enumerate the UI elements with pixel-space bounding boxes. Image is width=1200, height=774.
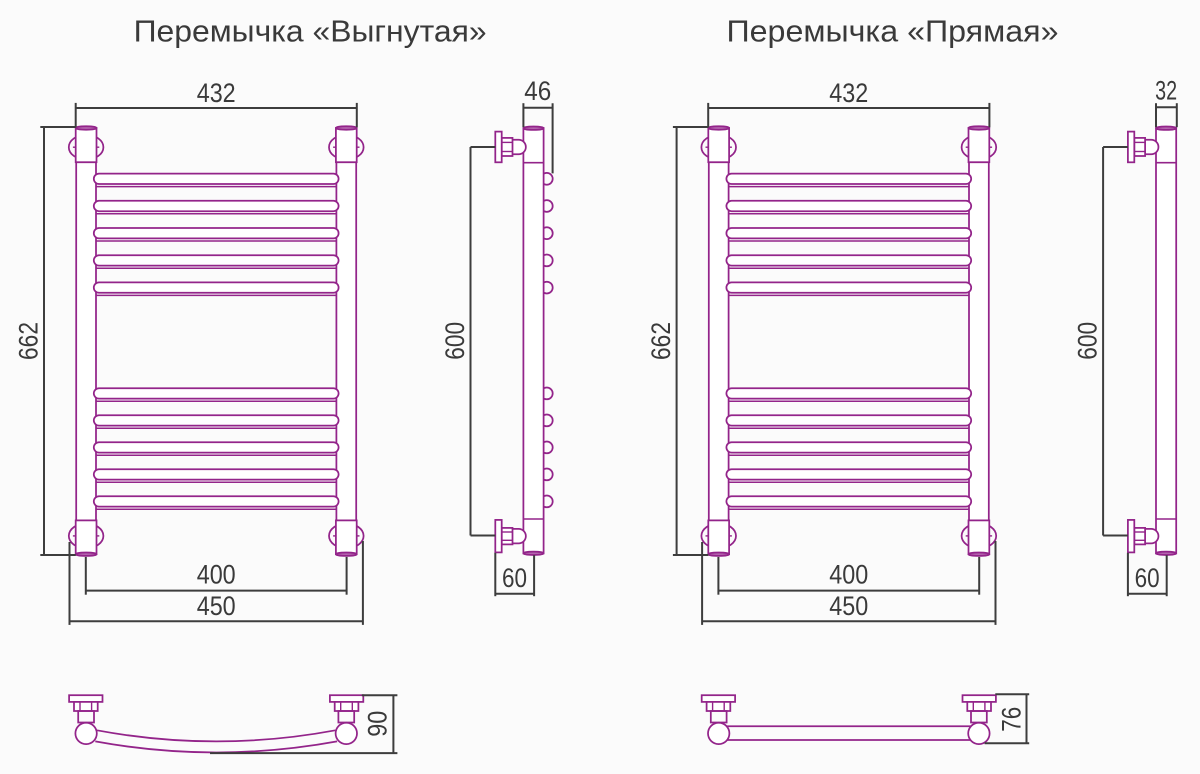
svg-text:600: 600 — [1073, 322, 1103, 360]
svg-text:76: 76 — [996, 707, 1026, 732]
svg-text:60: 60 — [502, 563, 527, 593]
svg-text:662: 662 — [13, 322, 43, 360]
svg-text:46: 46 — [524, 76, 551, 106]
svg-text:Перемычка «Прямая»: Перемычка «Прямая» — [727, 14, 1059, 48]
svg-text:60: 60 — [1135, 563, 1160, 593]
svg-text:450: 450 — [829, 591, 868, 621]
svg-text:600: 600 — [440, 322, 470, 360]
svg-text:400: 400 — [197, 560, 236, 590]
svg-text:90: 90 — [362, 711, 392, 737]
svg-text:32: 32 — [1155, 76, 1177, 106]
svg-text:662: 662 — [646, 322, 676, 360]
svg-text:432: 432 — [197, 78, 236, 108]
svg-text:450: 450 — [197, 591, 236, 621]
svg-text:Перемычка «Выгнутая»: Перемычка «Выгнутая» — [134, 14, 487, 48]
svg-text:432: 432 — [829, 78, 868, 108]
svg-text:400: 400 — [829, 560, 868, 590]
